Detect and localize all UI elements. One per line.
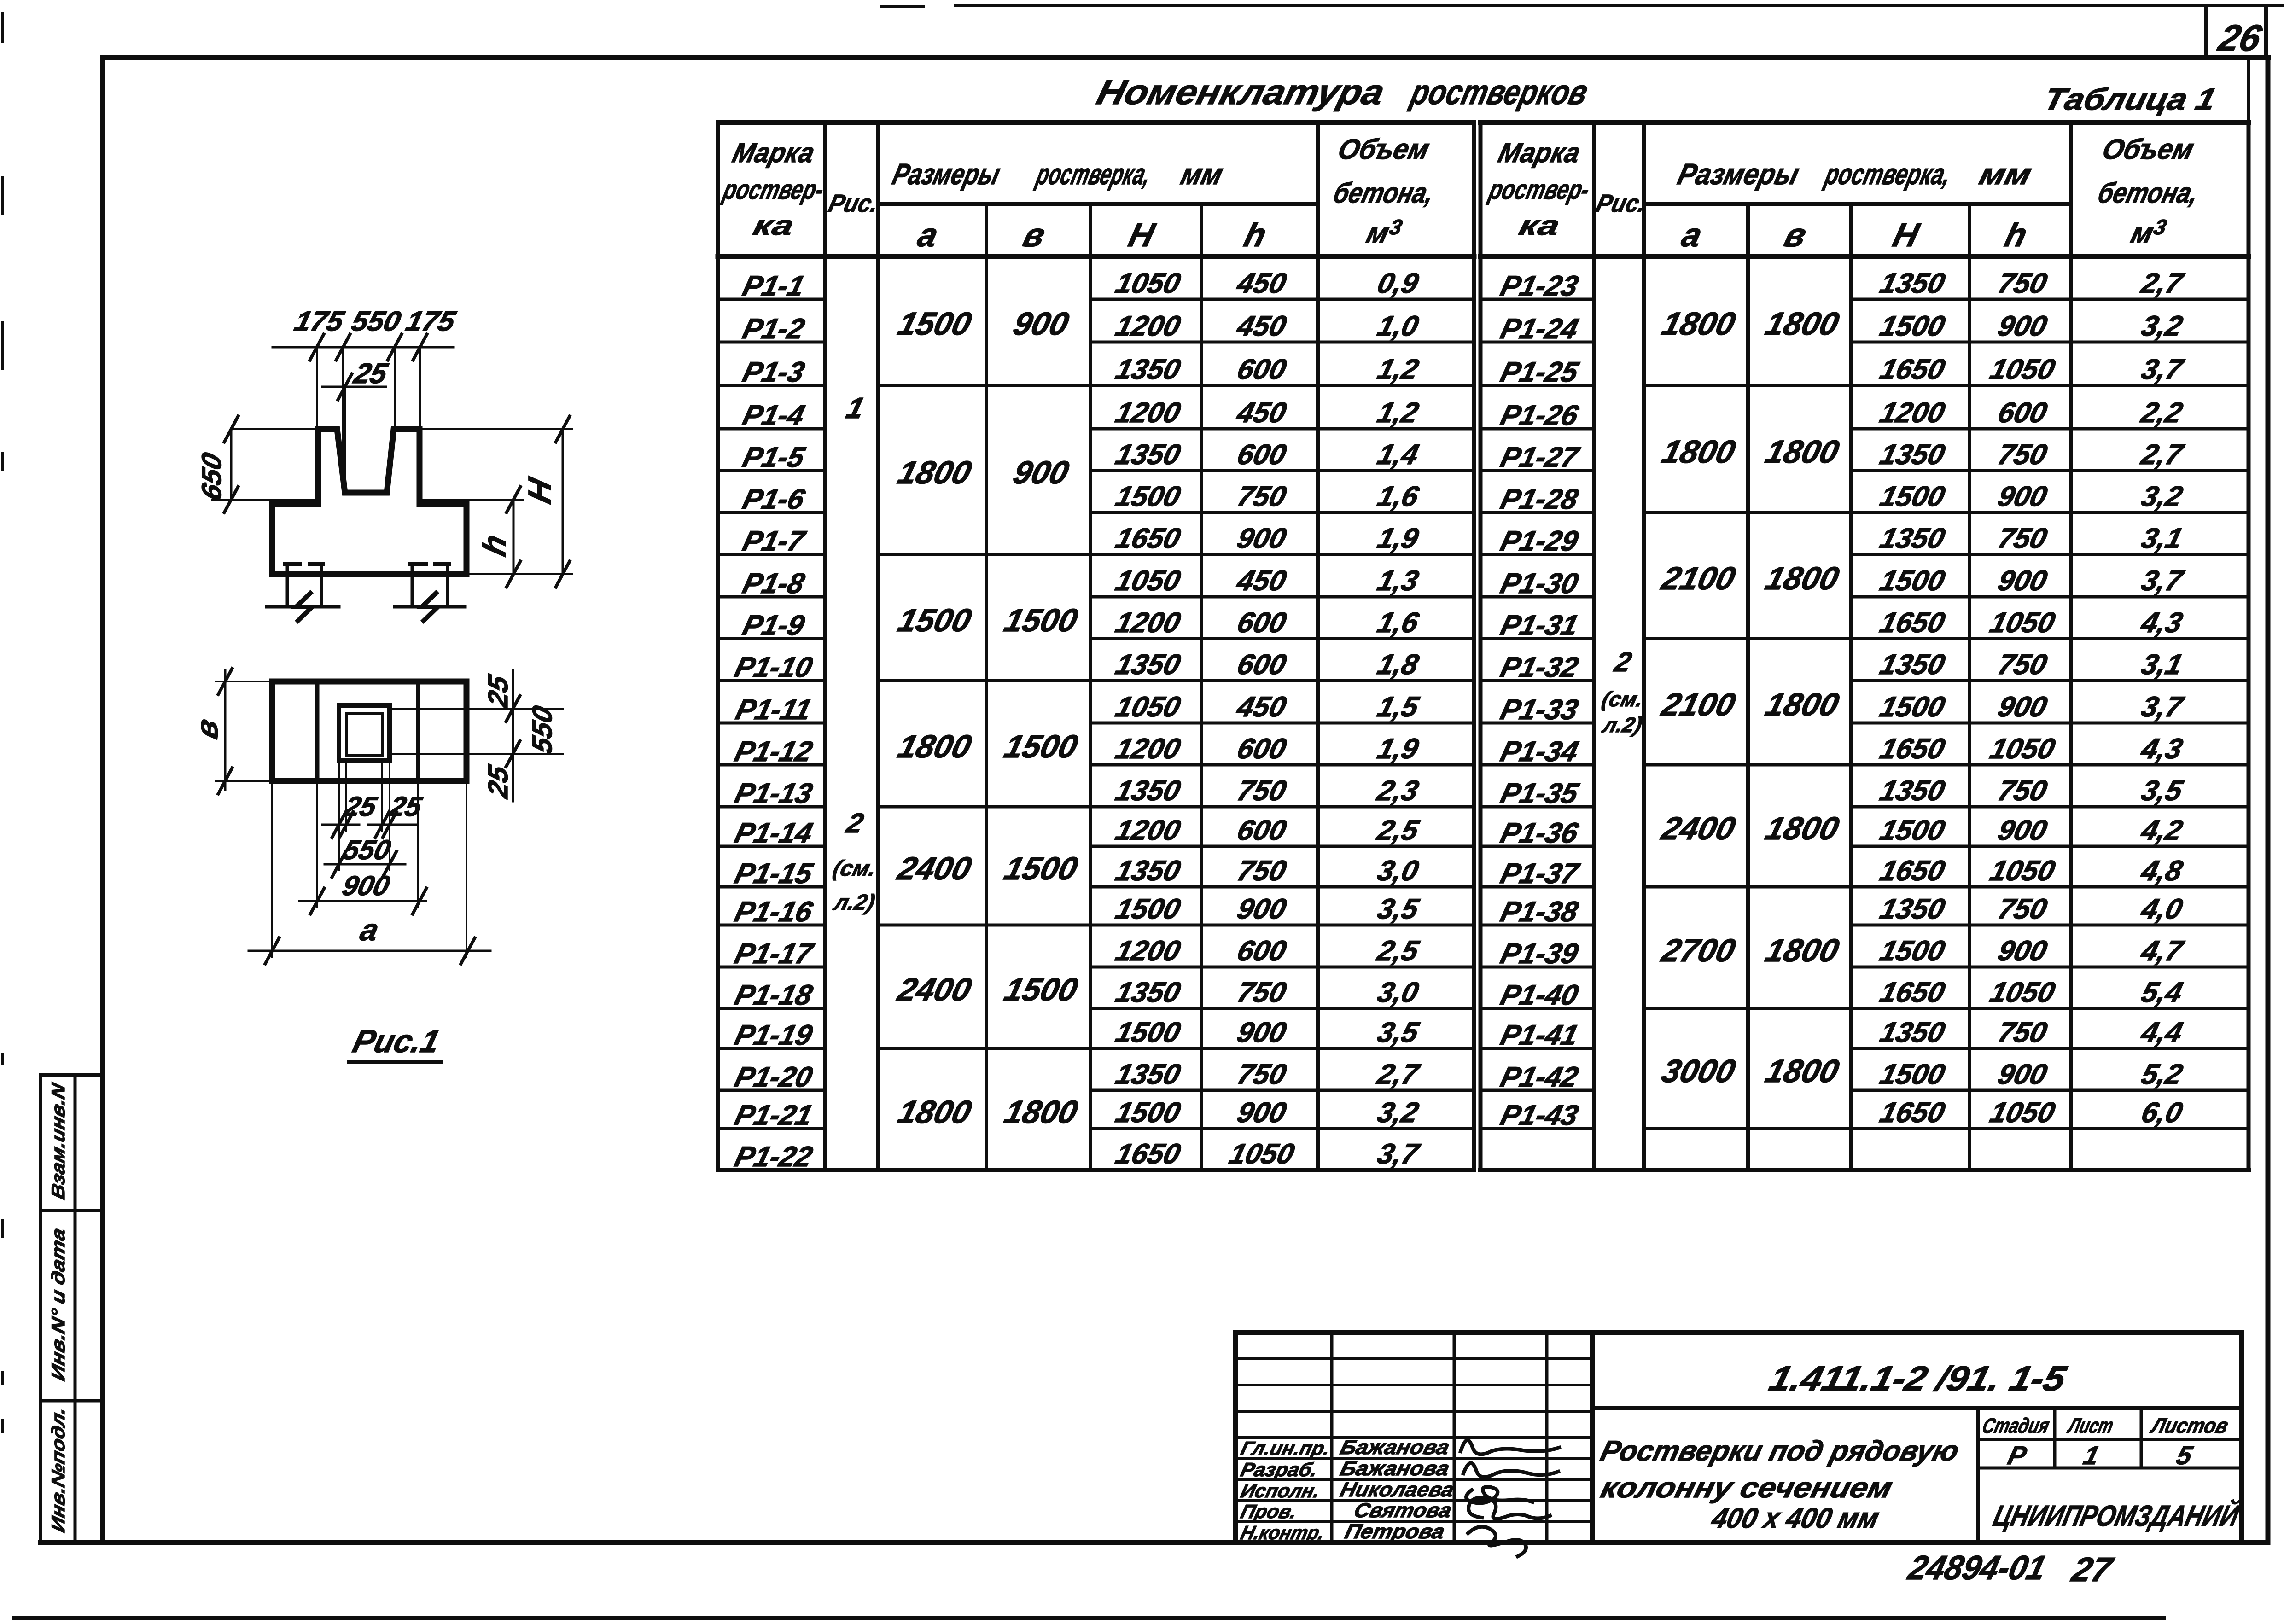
svg-text:1800: 1800 (894, 455, 975, 491)
svg-text:Бажанова: Бажанова (1338, 1437, 1452, 1459)
svg-text:1500: 1500 (1001, 729, 1081, 765)
svg-text:Р1-1: Р1-1 (740, 270, 808, 302)
svg-text:Р1-3: Р1-3 (740, 356, 808, 388)
svg-text:3,7: 3,7 (2138, 354, 2187, 385)
svg-text:1,4: 1,4 (1374, 439, 1422, 471)
svg-text:600: 600 (1234, 815, 1290, 846)
svg-text:1500: 1500 (1877, 815, 1948, 846)
svg-text:2100: 2100 (1657, 561, 1739, 597)
svg-text:1800: 1800 (1762, 1054, 1842, 1089)
svg-text:450: 450 (1233, 691, 1290, 723)
svg-text:Р1-37: Р1-37 (1497, 858, 1583, 890)
svg-text:2700: 2700 (1657, 933, 1739, 969)
svg-text:1500: 1500 (1877, 935, 1948, 967)
svg-text:1050: 1050 (1113, 691, 1184, 723)
svg-text:1500: 1500 (1877, 1059, 1948, 1090)
svg-text:а: а (357, 913, 382, 947)
svg-text:Р1-20: Р1-20 (732, 1061, 816, 1093)
svg-text:750: 750 (1234, 1059, 1290, 1090)
svg-text:750: 750 (1995, 649, 2051, 681)
svg-text:Бажанова: Бажанова (1338, 1458, 1452, 1480)
svg-text:1200: 1200 (1877, 397, 1948, 429)
svg-text:Р1-24: Р1-24 (1497, 313, 1582, 345)
svg-text:3,5: 3,5 (1374, 1017, 1422, 1048)
svg-text:1500: 1500 (1001, 603, 1081, 639)
svg-text:3,1: 3,1 (2138, 649, 2185, 681)
svg-text:24894-01: 24894-01 (1904, 1548, 2050, 1587)
svg-text:Р1-5: Р1-5 (740, 442, 808, 473)
svg-text:750: 750 (1995, 893, 2051, 925)
svg-text:Лист: Лист (2065, 1414, 2116, 1438)
svg-text:Р1-40: Р1-40 (1497, 979, 1582, 1011)
svg-text:1800: 1800 (1658, 434, 1739, 470)
svg-text:1,6: 1,6 (1374, 607, 1422, 639)
svg-text:1350: 1350 (1877, 523, 1948, 554)
svg-text:900: 900 (1995, 935, 2051, 967)
svg-text:2,2: 2,2 (2138, 397, 2185, 429)
svg-text:1350: 1350 (1877, 775, 1948, 807)
svg-text:750: 750 (1995, 1017, 2051, 1048)
svg-text:в: в (190, 715, 224, 742)
svg-text:650: 650 (196, 449, 227, 503)
svg-text:а: а (914, 217, 942, 254)
svg-text:Разраб.: Разраб. (1239, 1459, 1320, 1481)
svg-text:Марка: Марка (1495, 137, 1584, 168)
svg-text:2: 2 (843, 808, 867, 838)
svg-text:1,2: 1,2 (1374, 397, 1422, 429)
svg-text:Р1-18: Р1-18 (732, 979, 816, 1011)
svg-text:1650: 1650 (1877, 607, 1948, 639)
svg-text:900: 900 (1010, 306, 1072, 342)
svg-text:1050: 1050 (1113, 268, 1184, 299)
svg-text:м3: м3 (2128, 215, 2169, 249)
svg-text:Р1-26: Р1-26 (1497, 400, 1582, 431)
svg-text:1500: 1500 (1877, 481, 1948, 512)
svg-text:1200: 1200 (1113, 607, 1184, 639)
svg-text:(см.: (см. (1600, 687, 1646, 711)
svg-text:900: 900 (339, 870, 393, 901)
svg-text:1050: 1050 (1987, 733, 2058, 765)
svg-text:2,7: 2,7 (2138, 439, 2187, 471)
svg-text:H: H (1125, 217, 1159, 254)
svg-text:Р1-42: Р1-42 (1497, 1061, 1582, 1093)
svg-text:1,3: 1,3 (1374, 565, 1422, 597)
svg-text:ка: ка (1516, 210, 1563, 241)
svg-text:1500: 1500 (1113, 481, 1184, 512)
svg-text:Р1-35: Р1-35 (1497, 778, 1582, 809)
svg-text:900: 900 (1995, 691, 2051, 723)
svg-text:2400: 2400 (1657, 811, 1739, 847)
svg-text:27: 27 (2068, 1550, 2117, 1589)
svg-text:2: 2 (1611, 646, 1635, 677)
svg-text:3,5: 3,5 (1374, 893, 1422, 925)
svg-text:Р1-7: Р1-7 (740, 525, 809, 557)
svg-text:1050: 1050 (1113, 565, 1184, 597)
svg-text:3,7: 3,7 (2138, 565, 2187, 597)
svg-text:1500: 1500 (1113, 1017, 1184, 1048)
svg-text:Листов: Листов (2148, 1414, 2231, 1438)
svg-text:Р1-11: Р1-11 (733, 694, 815, 726)
svg-text:Р1-21: Р1-21 (732, 1100, 816, 1131)
svg-text:1500: 1500 (1001, 972, 1081, 1008)
svg-text:2400: 2400 (893, 972, 975, 1008)
svg-text:1350: 1350 (1113, 649, 1184, 681)
svg-text:Р1-19: Р1-19 (732, 1019, 816, 1051)
svg-text:Р1-34: Р1-34 (1497, 736, 1582, 768)
svg-text:1,0: 1,0 (1374, 310, 1422, 342)
svg-text:Р1-9: Р1-9 (740, 610, 808, 641)
svg-text:2,3: 2,3 (1374, 775, 1422, 807)
svg-text:роствер-: роствер- (720, 174, 827, 205)
svg-text:бетона,: бетона, (1330, 177, 1437, 209)
svg-text:а: а (1678, 217, 1706, 254)
svg-text:750: 750 (1995, 523, 2051, 554)
svg-text:1800: 1800 (1762, 434, 1842, 470)
svg-text:1200: 1200 (1113, 935, 1184, 967)
svg-text:Р1-8: Р1-8 (740, 568, 808, 600)
svg-text:1800: 1800 (1658, 306, 1739, 342)
svg-text:Размеры: Размеры (1675, 157, 1803, 191)
svg-text:Р1-15: Р1-15 (732, 858, 816, 890)
svg-text:Р1-16: Р1-16 (732, 896, 816, 928)
svg-text:1200: 1200 (1113, 815, 1184, 846)
svg-text:1350: 1350 (1877, 1017, 1948, 1048)
svg-text:Р1-13: Р1-13 (732, 778, 816, 809)
svg-text:Р1-38: Р1-38 (1497, 896, 1582, 928)
svg-text:ростверка,: ростверка, (1821, 157, 1954, 191)
svg-text:2,7: 2,7 (1374, 1059, 1423, 1090)
svg-text:мм: мм (1178, 157, 1227, 191)
svg-text:1350: 1350 (1113, 1059, 1184, 1090)
svg-text:1350: 1350 (1877, 439, 1948, 471)
svg-text:900: 900 (1234, 1097, 1290, 1129)
svg-text:1500: 1500 (1877, 691, 1948, 723)
svg-text:600: 600 (1234, 733, 1290, 765)
svg-text:Р1-28: Р1-28 (1497, 483, 1582, 515)
svg-text:4,8: 4,8 (2138, 855, 2186, 887)
svg-text:900: 900 (1995, 565, 2051, 597)
svg-text:H: H (1889, 217, 1923, 254)
svg-text:Р1-10: Р1-10 (732, 652, 816, 683)
svg-text:450: 450 (1233, 565, 1290, 597)
svg-text:750: 750 (1995, 439, 2051, 471)
svg-text:600: 600 (1234, 607, 1290, 639)
svg-text:мм: мм (1976, 157, 2035, 191)
svg-text:1050: 1050 (1987, 855, 2058, 887)
svg-text:4,3: 4,3 (2138, 607, 2186, 639)
svg-text:1800: 1800 (894, 729, 975, 765)
svg-text:900: 900 (1010, 455, 1072, 491)
svg-text:3,2: 3,2 (1374, 1097, 1422, 1129)
svg-text:3,7: 3,7 (2138, 691, 2187, 723)
svg-text:1350: 1350 (1113, 439, 1184, 471)
svg-text:3,2: 3,2 (2138, 481, 2185, 512)
svg-text:1500: 1500 (1877, 310, 1948, 342)
svg-text:750: 750 (1995, 775, 2051, 807)
svg-text:2,5: 2,5 (1374, 935, 1422, 967)
svg-text:Рис.: Рис. (1594, 189, 1649, 217)
svg-text:5: 5 (2173, 1442, 2196, 1470)
svg-text:6,0: 6,0 (2138, 1097, 2185, 1129)
svg-text:Рис.1: Рис.1 (350, 1024, 443, 1059)
svg-text:1500: 1500 (894, 603, 975, 639)
svg-text:Объем: Объем (2099, 134, 2197, 165)
svg-text:Р1-27: Р1-27 (1497, 442, 1583, 473)
svg-text:1800: 1800 (1762, 306, 1842, 342)
svg-text:ЦНИИПРОМЗДАНИЙ: ЦНИИПРОМЗДАНИЙ (1990, 1499, 2243, 1532)
svg-text:Р1-23: Р1-23 (1497, 270, 1582, 302)
svg-text:Р1-29: Р1-29 (1497, 525, 1582, 557)
svg-text:1,8: 1,8 (1374, 649, 1422, 681)
svg-text:Ростверки под рядовую: Ростверки под рядовую (1597, 1435, 1962, 1467)
svg-text:Р1-12: Р1-12 (732, 736, 816, 768)
svg-text:600: 600 (1995, 397, 2051, 429)
svg-text:4,7: 4,7 (2138, 935, 2187, 967)
svg-text:1650: 1650 (1877, 1097, 1948, 1129)
svg-text:550: 550 (349, 306, 404, 337)
svg-text:1650: 1650 (1113, 523, 1184, 554)
svg-text:1500: 1500 (1877, 565, 1948, 597)
svg-text:в: в (1781, 217, 1810, 254)
svg-text:0,9: 0,9 (1374, 268, 1422, 299)
svg-text:5,2: 5,2 (2138, 1059, 2185, 1090)
svg-text:1,6: 1,6 (1374, 481, 1422, 512)
svg-text:900: 900 (1234, 523, 1290, 554)
svg-text:Р1-32: Р1-32 (1497, 652, 1582, 683)
svg-text:1050: 1050 (1226, 1138, 1298, 1170)
svg-text:3,7: 3,7 (1374, 1138, 1423, 1170)
svg-text:5,4: 5,4 (2138, 977, 2185, 1008)
svg-text:900: 900 (1234, 893, 1290, 925)
svg-text:1050: 1050 (1987, 607, 2058, 639)
svg-text:Р1-33: Р1-33 (1497, 694, 1582, 726)
svg-text:Р1-43: Р1-43 (1497, 1100, 1582, 1131)
svg-text:1,5: 1,5 (1374, 691, 1422, 723)
svg-text:550: 550 (340, 834, 394, 865)
svg-text:175: 175 (403, 306, 459, 337)
svg-text:h: h (1241, 217, 1270, 254)
svg-text:1800: 1800 (1762, 687, 1842, 723)
svg-text:1650: 1650 (1877, 733, 1948, 765)
svg-text:1800: 1800 (1762, 811, 1842, 847)
svg-text:4,4: 4,4 (2138, 1017, 2186, 1048)
svg-text:1050: 1050 (1987, 354, 2058, 385)
svg-text:175: 175 (291, 306, 348, 337)
svg-text:600: 600 (1234, 439, 1290, 471)
svg-text:ростверка,: ростверка, (1033, 157, 1154, 191)
svg-text:ростверков: ростверков (1406, 73, 1592, 112)
svg-text:Р1-17: Р1-17 (732, 938, 817, 970)
svg-text:750: 750 (1234, 481, 1290, 512)
svg-text:Стадия: Стадия (1980, 1414, 2052, 1438)
svg-text:25: 25 (350, 358, 391, 390)
svg-text:25: 25 (483, 672, 513, 711)
svg-text:450: 450 (1233, 268, 1290, 299)
svg-text:1350: 1350 (1877, 893, 1948, 925)
svg-text:1200: 1200 (1113, 397, 1184, 429)
svg-text:Р1-30: Р1-30 (1497, 568, 1582, 600)
svg-text:h: h (477, 531, 513, 559)
svg-text:3000: 3000 (1658, 1054, 1739, 1089)
svg-text:Объем: Объем (1335, 134, 1433, 165)
svg-text:Р1-41: Р1-41 (1497, 1019, 1582, 1051)
svg-text:4,3: 4,3 (2138, 733, 2186, 765)
svg-text:Инв.№подл.: Инв.№подл. (48, 1405, 69, 1534)
svg-text:h: h (2001, 217, 2031, 254)
svg-text:1350: 1350 (1113, 354, 1184, 385)
svg-text:в: в (1020, 217, 1049, 254)
svg-text:Николаева: Николаева (1338, 1479, 1457, 1501)
svg-text:Р1-2: Р1-2 (740, 313, 808, 345)
svg-text:1500: 1500 (894, 306, 975, 342)
svg-text:H: H (522, 474, 558, 507)
svg-text:1050: 1050 (1987, 1097, 2058, 1129)
svg-text:1200: 1200 (1113, 310, 1184, 342)
svg-text:роствер-: роствер- (1486, 174, 1593, 205)
svg-text:1.411.1-2 /91. 1-5: 1.411.1-2 /91. 1-5 (1765, 1359, 2070, 1398)
svg-text:550: 550 (527, 703, 558, 757)
svg-text:1350: 1350 (1877, 268, 1948, 299)
svg-text:450: 450 (1233, 397, 1290, 429)
svg-text:м3: м3 (1363, 215, 1405, 249)
svg-text:Р1-31: Р1-31 (1497, 610, 1582, 641)
svg-text:Номенклатура: Номенклатура (1093, 73, 1388, 112)
svg-text:Пров.: Пров. (1239, 1501, 1299, 1523)
svg-text:1350: 1350 (1877, 649, 1948, 681)
svg-text:1: 1 (2080, 1442, 2102, 1470)
svg-text:Р: Р (2005, 1442, 2030, 1470)
svg-text:3,0: 3,0 (1374, 855, 1422, 887)
svg-text:Рис.: Рис. (826, 189, 881, 217)
svg-text:Марка: Марка (729, 137, 818, 168)
svg-text:600: 600 (1234, 354, 1290, 385)
svg-text:Р1-25: Р1-25 (1497, 356, 1582, 388)
svg-text:25: 25 (483, 762, 513, 802)
svg-text:1,9: 1,9 (1374, 523, 1422, 554)
svg-text:Святова: Святова (1352, 1500, 1454, 1522)
svg-text:Р1-14: Р1-14 (732, 817, 816, 849)
svg-text:2,5: 2,5 (1374, 815, 1422, 846)
svg-text:л.2): л.2) (831, 891, 877, 915)
svg-text:2100: 2100 (1657, 687, 1739, 723)
svg-text:1500: 1500 (1001, 851, 1081, 887)
svg-text:1200: 1200 (1113, 733, 1184, 765)
svg-text:Взам.инв.N: Взам.инв.N (48, 1080, 69, 1201)
svg-text:1650: 1650 (1113, 1138, 1184, 1170)
svg-text:25: 25 (386, 791, 425, 822)
svg-text:3,0: 3,0 (1374, 977, 1422, 1008)
svg-text:1650: 1650 (1877, 855, 1948, 887)
svg-text:3,5: 3,5 (2138, 775, 2186, 807)
svg-text:Н.контр.: Н.контр. (1239, 1522, 1327, 1544)
svg-text:1500: 1500 (1113, 1097, 1184, 1129)
svg-text:Гл.ин.пр.: Гл.ин.пр. (1239, 1438, 1333, 1460)
svg-text:1050: 1050 (1987, 977, 2058, 1008)
svg-text:1,2: 1,2 (1374, 354, 1422, 385)
svg-text:Инв.N° и дата: Инв.N° и дата (48, 1226, 69, 1383)
svg-text:Р1-4: Р1-4 (740, 400, 808, 431)
svg-text:1800: 1800 (1001, 1094, 1081, 1130)
svg-text:л.2): л.2) (1600, 713, 1644, 737)
svg-text:Петрова: Петрова (1343, 1521, 1447, 1543)
svg-text:Р1-6: Р1-6 (740, 483, 808, 515)
svg-text:26: 26 (2214, 17, 2266, 59)
svg-text:1350: 1350 (1113, 775, 1184, 807)
svg-text:1800: 1800 (1762, 933, 1842, 969)
svg-text:750: 750 (1234, 855, 1290, 887)
svg-text:900: 900 (1995, 1059, 2051, 1090)
svg-text:900: 900 (1995, 815, 2051, 846)
svg-text:1800: 1800 (1762, 561, 1842, 597)
svg-text:750: 750 (1234, 977, 1290, 1008)
svg-text:1: 1 (843, 391, 868, 425)
svg-text:1800: 1800 (894, 1094, 975, 1130)
svg-text:1,9: 1,9 (1374, 733, 1422, 765)
svg-text:600: 600 (1234, 935, 1290, 967)
svg-text:750: 750 (1995, 268, 2051, 299)
svg-text:Р1-36: Р1-36 (1497, 817, 1582, 849)
svg-text:4,0: 4,0 (2138, 893, 2186, 925)
svg-text:3,1: 3,1 (2138, 523, 2185, 554)
svg-text:400 x 400 мм: 400 x 400 мм (1708, 1502, 1882, 1534)
svg-text:1500: 1500 (1113, 893, 1184, 925)
svg-text:600: 600 (1234, 649, 1290, 681)
svg-text:900: 900 (1995, 310, 2051, 342)
svg-text:1650: 1650 (1877, 977, 1948, 1008)
svg-text:3,2: 3,2 (2138, 310, 2185, 342)
svg-text:бетона,: бетона, (2095, 177, 2202, 209)
svg-text:2400: 2400 (893, 851, 975, 887)
svg-text:колонну сечением: колонну сечением (1598, 1472, 1896, 1504)
svg-text:Исполн.: Исполн. (1239, 1480, 1323, 1502)
svg-text:Р1-39: Р1-39 (1497, 938, 1582, 970)
svg-text:ка: ка (750, 210, 797, 241)
svg-text:Размеры: Размеры (890, 157, 1004, 191)
svg-text:2,7: 2,7 (2138, 268, 2187, 299)
svg-text:450: 450 (1233, 310, 1290, 342)
svg-text:(см.: (см. (831, 856, 879, 881)
svg-text:1350: 1350 (1113, 977, 1184, 1008)
svg-text:900: 900 (1234, 1017, 1290, 1048)
svg-text:Р1-22: Р1-22 (732, 1141, 816, 1173)
svg-text:4,2: 4,2 (2138, 815, 2186, 846)
svg-text:1350: 1350 (1113, 855, 1184, 887)
svg-text:900: 900 (1995, 481, 2051, 512)
svg-text:1650: 1650 (1877, 354, 1948, 385)
svg-text:750: 750 (1234, 775, 1290, 807)
svg-text:Таблица 1: Таблица 1 (2040, 82, 2219, 116)
